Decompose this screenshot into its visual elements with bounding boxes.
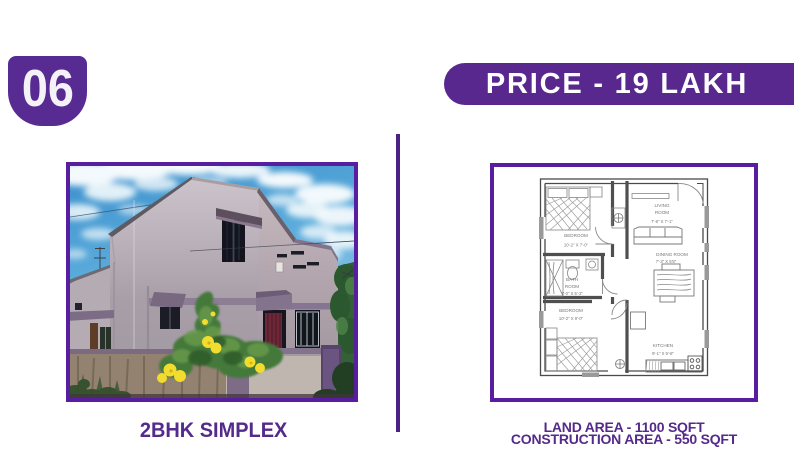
svg-text:BEDROOM: BEDROOM [564,233,588,238]
svg-text:BATH: BATH [566,277,578,282]
svg-text:DINING ROOM: DINING ROOM [656,252,688,257]
svg-text:KITCHEN: KITCHEN [653,343,673,348]
svg-text:7'-3" X 5'8": 7'-3" X 5'8" [656,259,677,264]
svg-text:10'-2" X 9'-0": 10'-2" X 9'-0" [559,316,584,321]
svg-text:9'-1" X 9'-8": 9'-1" X 9'-8" [652,351,674,356]
svg-text:ROOM: ROOM [655,210,669,215]
svg-text:7'-0" X 5'-2": 7'-0" X 5'-2" [561,291,583,296]
svg-text:ROOM: ROOM [565,284,579,289]
svg-text:7'-8" X 7'-1": 7'-8" X 7'-1" [651,219,673,224]
svg-text:10'-2" X 7'-0": 10'-2" X 7'-0" [564,243,589,248]
svg-text:BEDROOM: BEDROOM [559,308,583,313]
svg-text:LIVING: LIVING [654,203,669,208]
